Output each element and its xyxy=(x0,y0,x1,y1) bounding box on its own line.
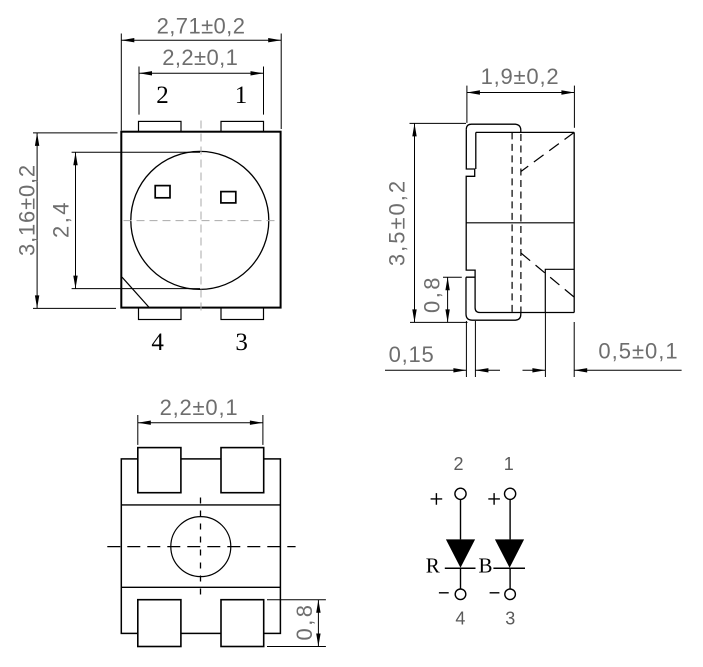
svg-text:2,4: 2,4 xyxy=(49,200,74,238)
svg-text:R: R xyxy=(426,554,440,578)
svg-text:1,9±0,2: 1,9±0,2 xyxy=(481,64,560,89)
svg-text:3,16±0,2: 3,16±0,2 xyxy=(15,164,40,256)
svg-text:0,15: 0,15 xyxy=(389,342,435,367)
svg-text:2,2±0,1: 2,2±0,1 xyxy=(160,395,239,420)
svg-text:0,8: 0,8 xyxy=(292,602,317,640)
svg-text:2,2±0,1: 2,2±0,1 xyxy=(162,45,238,70)
svg-text:0,5±0,1: 0,5±0,1 xyxy=(598,339,678,364)
svg-text:2,71±0,2: 2,71±0,2 xyxy=(157,14,246,39)
svg-text:2: 2 xyxy=(156,82,169,109)
svg-text:4: 4 xyxy=(151,329,164,356)
svg-text:3: 3 xyxy=(505,609,515,629)
svg-text:1: 1 xyxy=(235,82,248,109)
svg-text:0,8: 0,8 xyxy=(420,275,445,313)
svg-text:3: 3 xyxy=(235,329,248,356)
svg-text:B: B xyxy=(478,554,492,578)
svg-text:2: 2 xyxy=(453,454,463,474)
svg-text:3,5±0,2: 3,5±0,2 xyxy=(385,179,410,266)
svg-text:4: 4 xyxy=(455,609,465,629)
svg-text:1: 1 xyxy=(504,454,514,474)
